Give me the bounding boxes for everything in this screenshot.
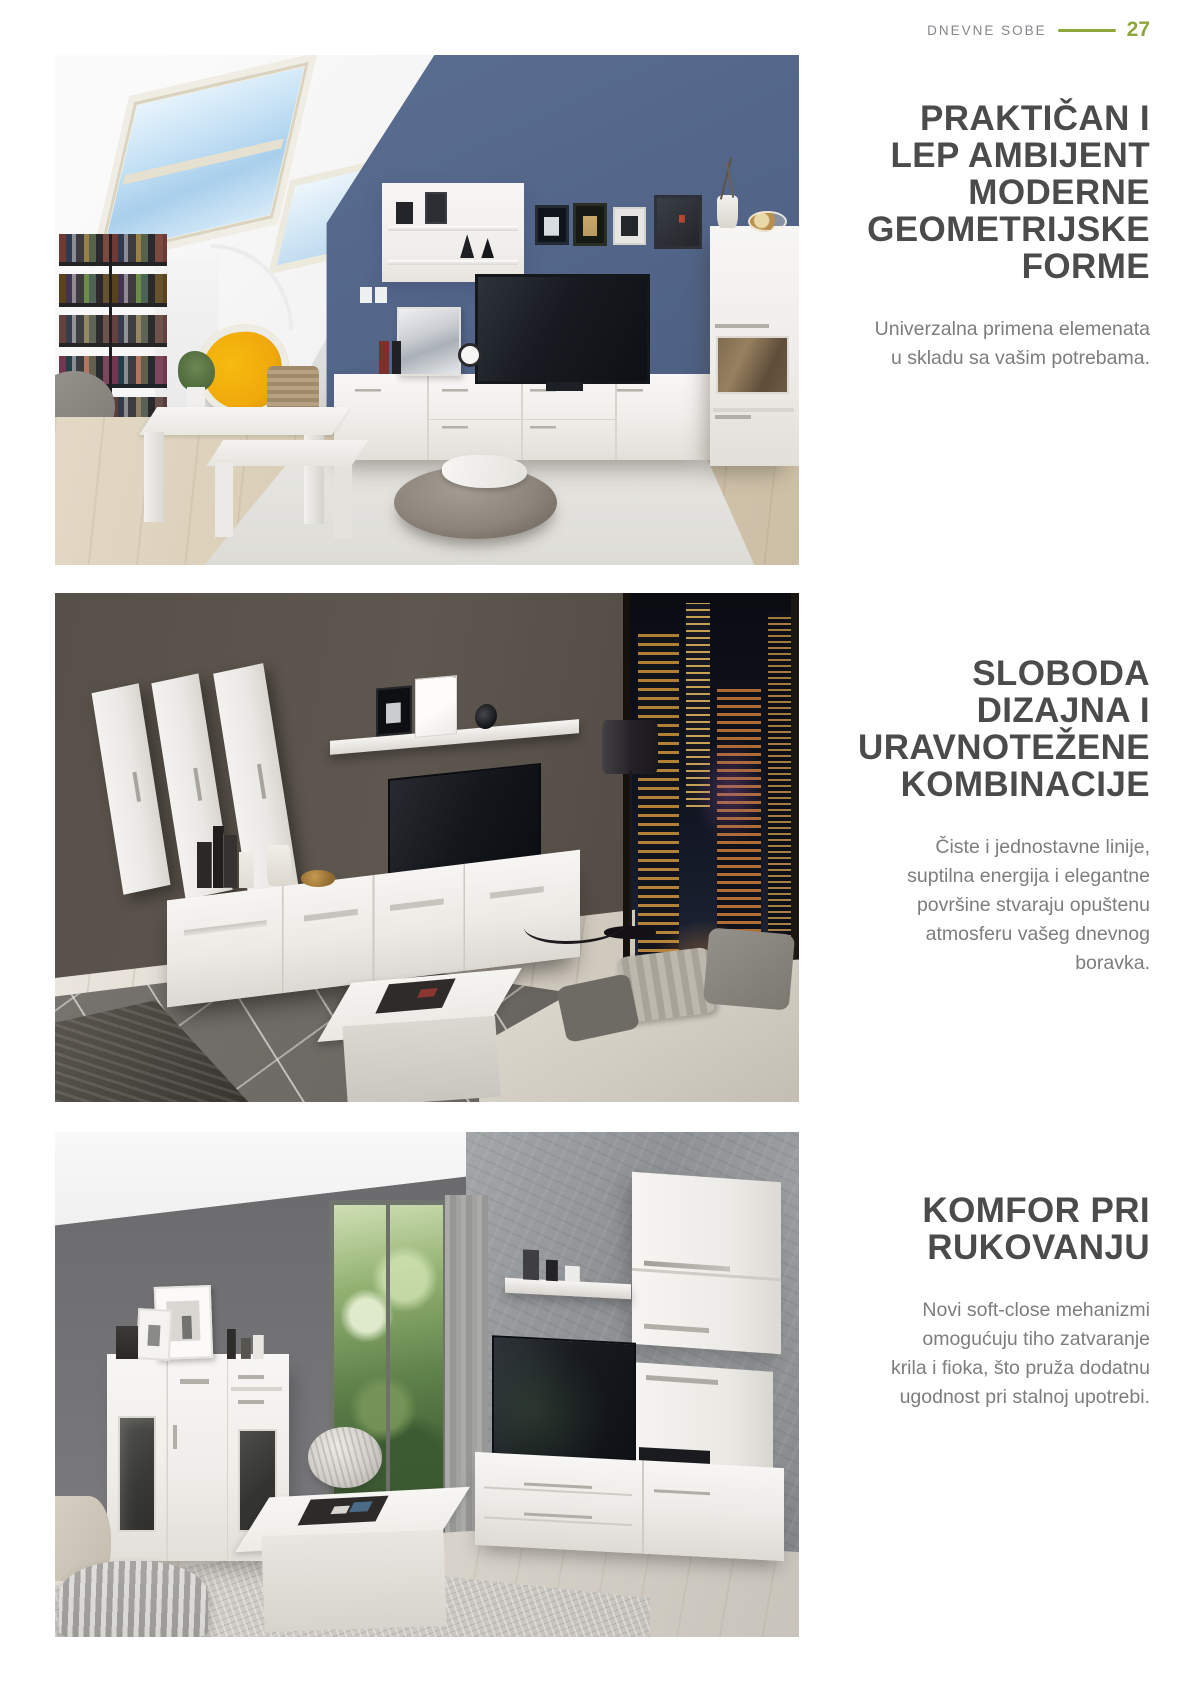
leaning-picture-frame	[136, 1308, 173, 1360]
heading-line: DIZAJNA I	[770, 692, 1150, 729]
cabinet-handle	[257, 764, 266, 800]
decor-bottles	[193, 822, 260, 888]
cabinet-handle	[715, 415, 751, 419]
heading-line: PRAKTIČAN I	[770, 100, 1150, 137]
picture-frame	[415, 675, 457, 737]
picture-frame	[654, 195, 702, 249]
cabinet-glass-door	[716, 336, 789, 394]
cabinet-drawer-line	[713, 408, 793, 412]
knitted-pouf-small	[308, 1427, 382, 1488]
bookshelf-row	[59, 234, 167, 266]
photo-gray-living-room	[55, 1132, 799, 1637]
bookshelf-row	[59, 315, 167, 347]
body-line: boravka.	[770, 949, 1150, 978]
heading-line: KOMFOR PRI	[770, 1192, 1150, 1229]
body-line: suptilna energija i elegantne	[770, 862, 1150, 891]
picture-frame	[535, 205, 569, 245]
page-header: DNEVNE SOBE 27	[927, 16, 1150, 44]
bench-seam	[642, 1461, 644, 1555]
highboard-handle	[238, 1400, 264, 1405]
heading-line: KOMBINACIJE	[770, 766, 1150, 803]
bookshelf-row	[59, 274, 167, 306]
shelf-decor	[516, 1249, 590, 1283]
potted-plant	[178, 351, 215, 392]
knitted-pouf-large	[59, 1561, 208, 1637]
nesting-table-leg	[334, 466, 352, 540]
tv-bench	[475, 1452, 784, 1562]
body-line: površine stvaraju opuštenu	[770, 891, 1150, 920]
section-body: Univerzalna primena elemenata u skladu s…	[770, 315, 1150, 373]
highboard-drawer-line	[231, 1387, 282, 1391]
sofa-pillow	[703, 928, 795, 1012]
city-glow	[693, 736, 768, 848]
body-line: Čiste i jednostavne linije,	[770, 833, 1150, 862]
cabinet-handle	[715, 324, 769, 328]
leaning-artwork	[397, 307, 461, 376]
photo-attic-living-room	[55, 55, 799, 565]
decor-vases	[222, 1321, 270, 1359]
folded-blanket	[442, 455, 528, 488]
nesting-table-small-top	[207, 440, 369, 466]
glass-fruit-bowl	[748, 211, 787, 232]
heading-line: FORME	[770, 248, 1150, 285]
body-line: atmosferu vašeg dnevnog	[770, 920, 1150, 949]
nesting-table-large-top	[139, 407, 351, 435]
white-vase	[717, 195, 738, 228]
body-line: omogućuju tiho zatvaranje	[770, 1325, 1150, 1354]
body-line: u skladu sa vašim potrebama.	[770, 344, 1150, 373]
body-line: krila i fioka, što pruža dodatnu	[770, 1354, 1150, 1383]
section-heading: KOMFOR PRI RUKOVANJU	[770, 1192, 1150, 1266]
cabinet-handle	[132, 771, 141, 802]
tv-screen	[475, 274, 650, 384]
shelf-board	[388, 226, 518, 230]
photo-night-city-living-room	[55, 593, 799, 1102]
cabinet-handle	[646, 1375, 718, 1384]
picture-frame	[573, 203, 607, 246]
shelf-decor-frame	[396, 202, 413, 224]
shelf-decor-vase	[481, 238, 494, 258]
heading-line: GEOMETRIJSKE	[770, 211, 1150, 248]
coffee-table-front	[343, 1015, 501, 1102]
decor-vases	[379, 341, 401, 374]
shelf-decor-vase	[460, 234, 474, 258]
nesting-table-leg	[215, 463, 233, 537]
picture-frame	[613, 207, 646, 245]
nesting-table-leg	[144, 432, 163, 521]
light-switches	[360, 287, 387, 303]
cabinet-seam	[632, 1268, 781, 1281]
section-copy: SLOBODA DIZAJNA I URAVNOTEŽENE KOMBINACI…	[770, 655, 1150, 978]
sideboard-handles	[334, 374, 710, 461]
heading-line: RUKOVANJU	[770, 1229, 1150, 1266]
section-body: Novi soft-close mehanizmi omogućuju tiho…	[770, 1296, 1150, 1412]
heading-line: MODERNE	[770, 174, 1150, 211]
bench-drawer-line	[485, 1486, 633, 1496]
coffee-table-front	[262, 1530, 448, 1632]
cabinet-handle	[643, 1324, 708, 1333]
table-tray	[298, 1496, 389, 1526]
section-body: Čiste i jednostavne linije, suptilna ene…	[770, 833, 1150, 978]
highboard-handle	[238, 1375, 264, 1380]
wall-hung-cabinet-upper	[632, 1172, 781, 1354]
section-heading: SLOBODA DIZAJNA I URAVNOTEŽENE KOMBINACI…	[770, 655, 1150, 803]
heading-line: LEP AMBIJENT	[770, 137, 1150, 174]
cabinet-handle	[193, 767, 202, 800]
highboard-handle	[180, 1379, 209, 1384]
heading-line: URAVNOTEŽENE	[770, 729, 1150, 766]
body-line: Novi soft-close mehanizmi	[770, 1296, 1150, 1325]
white-jar	[267, 845, 291, 886]
page-number: 27	[1127, 18, 1150, 42]
section-label: DNEVNE SOBE	[927, 23, 1047, 38]
gold-bowl	[301, 870, 335, 886]
section-heading: PRAKTIČAN I LEP AMBIJENT MODERNE GEOMETR…	[770, 100, 1150, 285]
body-line: Univerzalna primena elemenata	[770, 315, 1150, 344]
shelf-board	[388, 260, 518, 264]
decor-jug	[116, 1326, 138, 1359]
bench-drawer-line	[485, 1516, 633, 1526]
tv-screen	[492, 1335, 636, 1466]
bench-handle	[654, 1490, 710, 1496]
body-line: ugodnost pri stalnoj upotrebi.	[770, 1383, 1150, 1412]
wall-shelf-unit	[382, 183, 523, 282]
floor-lamp-pole	[629, 771, 632, 929]
section-copy: PRAKTIČAN I LEP AMBIJENT MODERNE GEOMETR…	[770, 100, 1150, 373]
header-rule	[1058, 29, 1116, 32]
highboard-handle	[173, 1425, 177, 1450]
shelf-decor-frame	[425, 192, 448, 224]
tall-display-cabinet	[710, 226, 799, 466]
highboard-glass-pane	[118, 1416, 156, 1532]
floor-lamp-shade	[602, 720, 659, 773]
heading-line: SLOBODA	[770, 655, 1150, 692]
tv-sideboard	[334, 374, 710, 461]
tv-stand	[546, 382, 583, 390]
section-copy: KOMFOR PRI RUKOVANJU Novi soft-close meh…	[770, 1192, 1150, 1412]
picture-frame	[376, 686, 412, 737]
